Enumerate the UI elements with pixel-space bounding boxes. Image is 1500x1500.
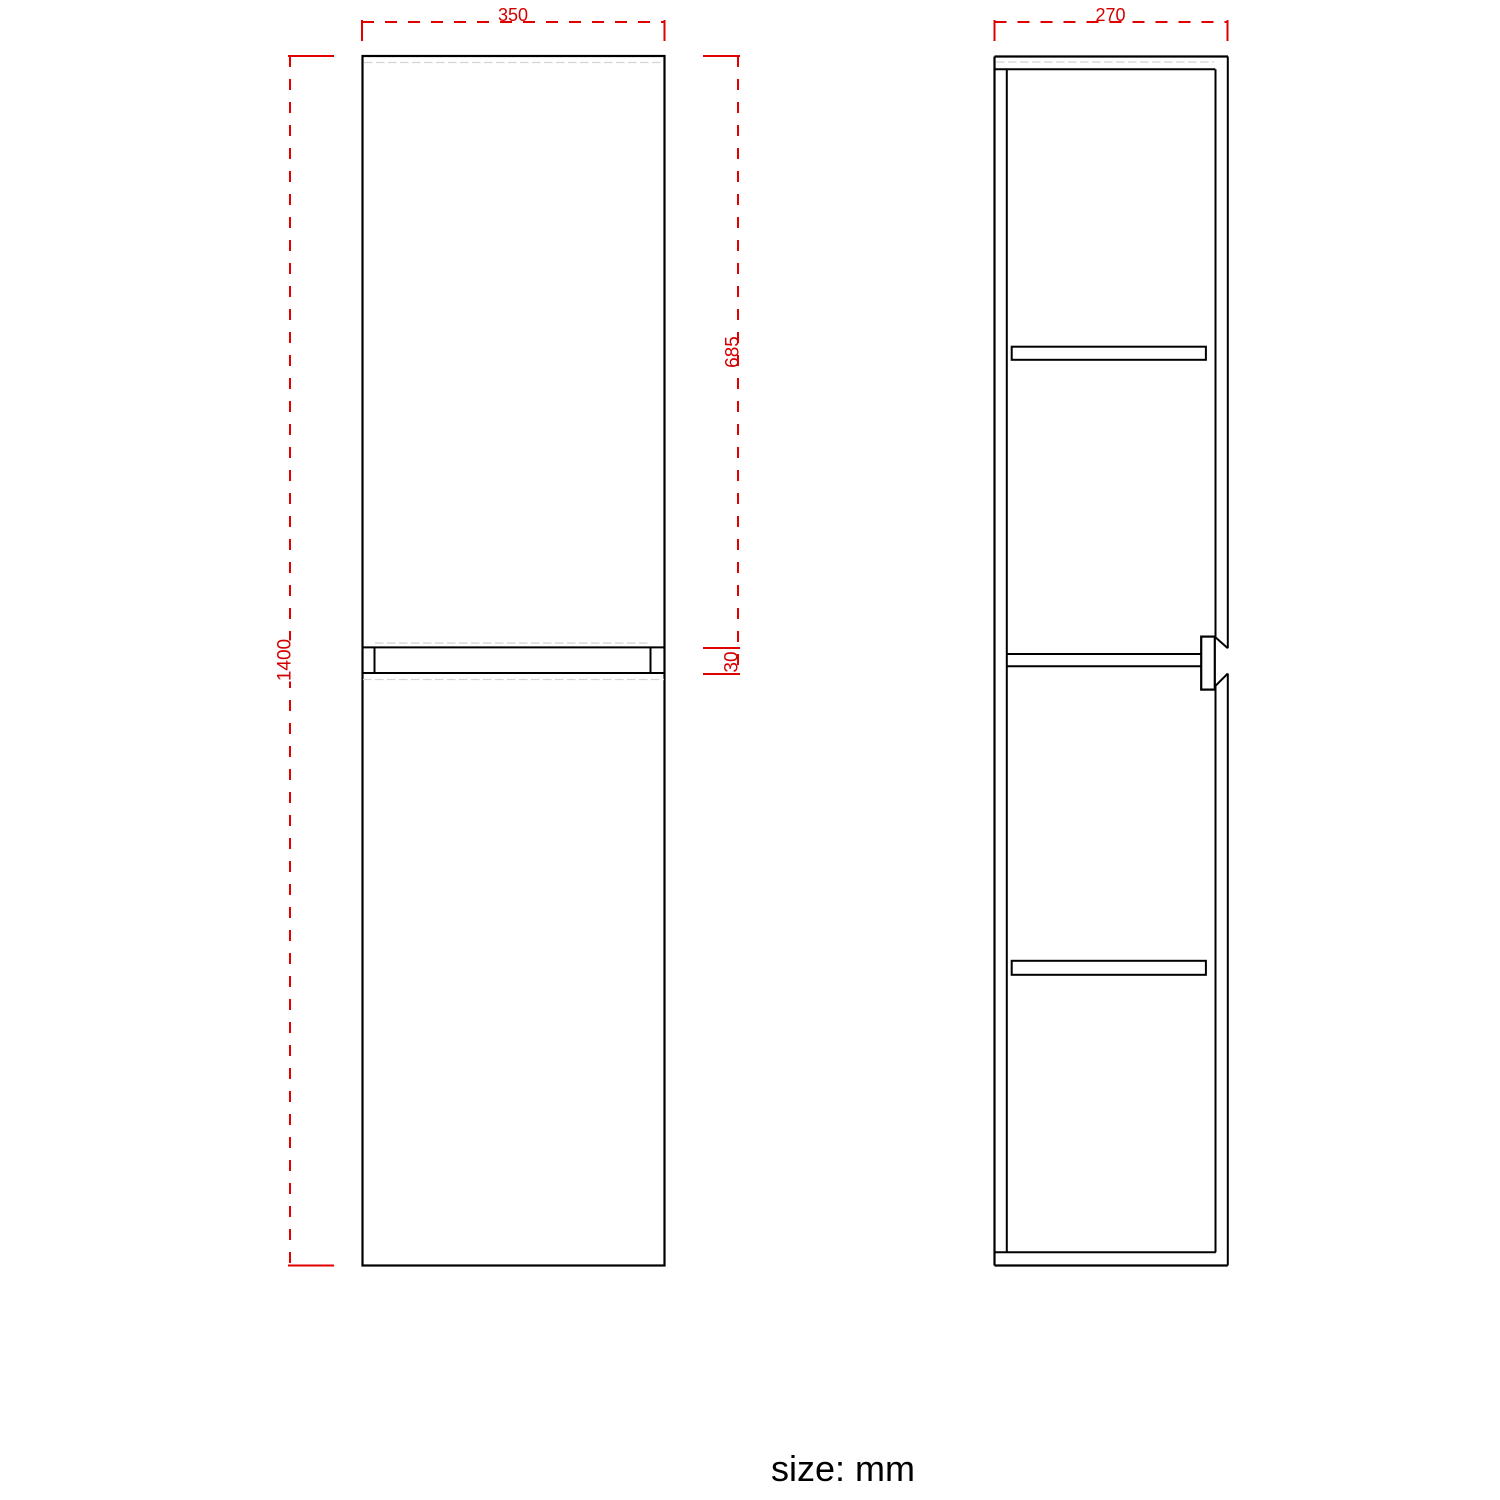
svg-text:30: 30 (722, 651, 743, 672)
svg-text:270: 270 (1095, 5, 1125, 25)
svg-text:1400: 1400 (275, 639, 296, 681)
svg-text:350: 350 (498, 5, 528, 25)
svg-text:685: 685 (723, 336, 744, 368)
svg-text:size: mm: size: mm (771, 1448, 915, 1489)
